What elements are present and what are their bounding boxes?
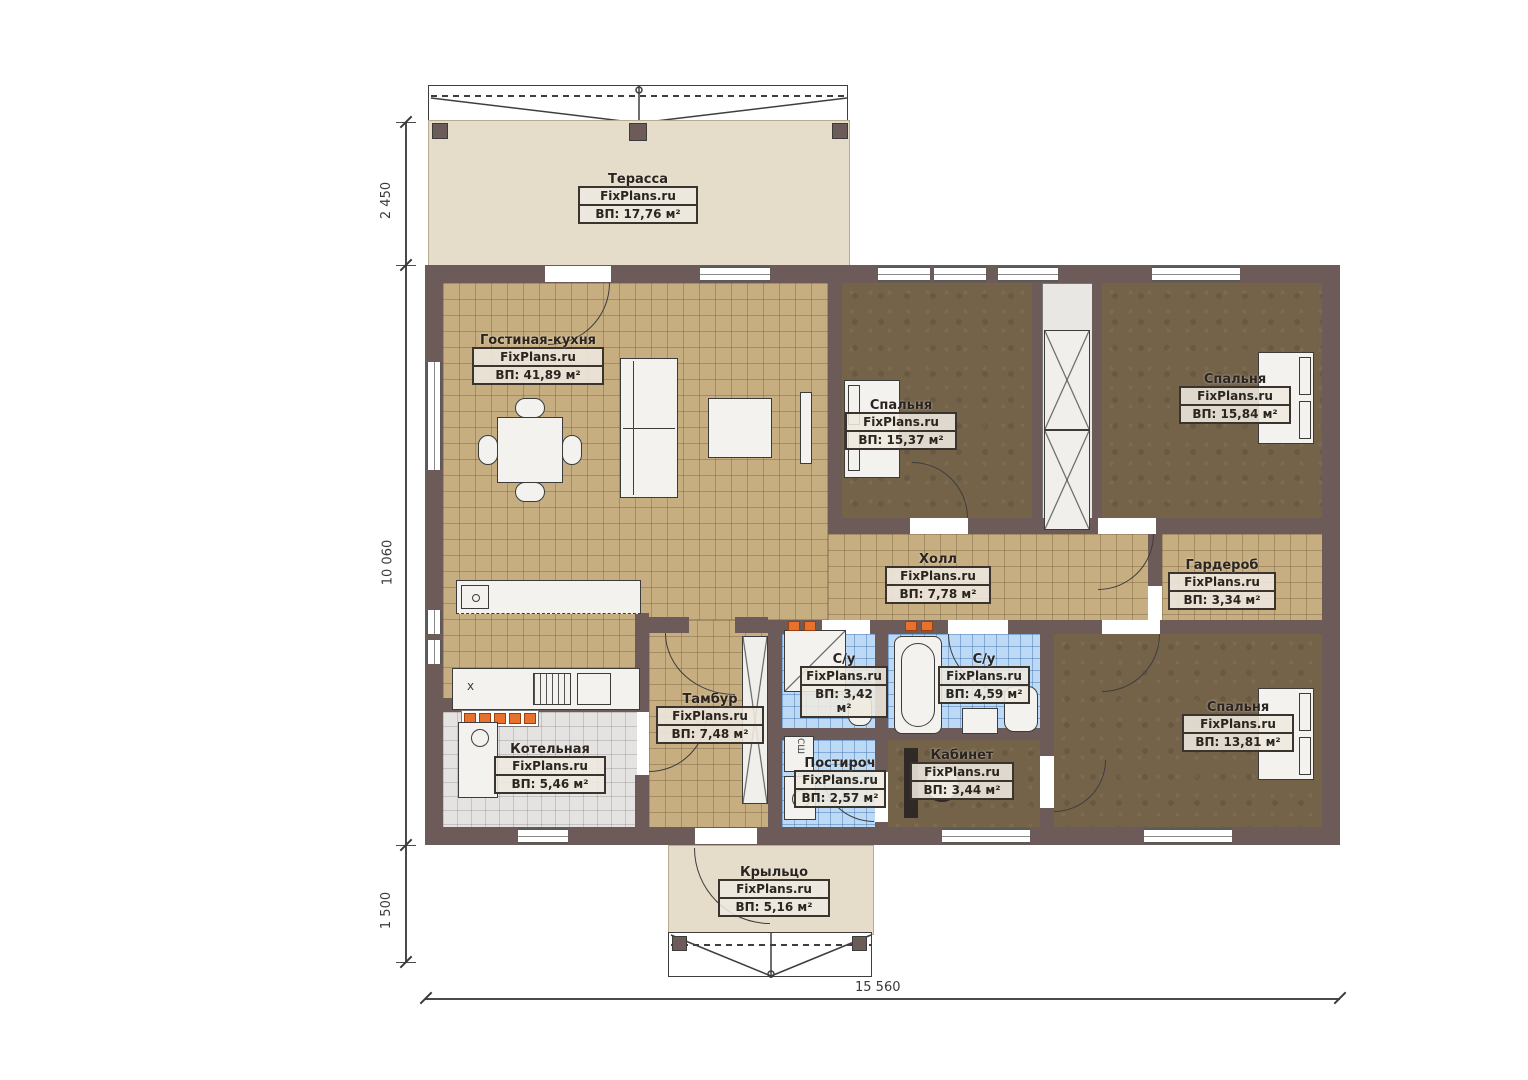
area-box: ВП: 7,78 м² [885, 584, 991, 604]
pillow [1299, 357, 1311, 395]
porch-roof-lines [669, 933, 873, 978]
room-name: Холл [885, 552, 991, 567]
room-name: С/у [938, 652, 1030, 667]
label-bathroom2: С/у FixPlans.ru ВП: 4,59 м² [938, 652, 1030, 704]
wall-vestibule-top-right [735, 617, 768, 633]
area-box: ВП: 15,84 м² [1179, 404, 1291, 424]
closet-lower [1044, 430, 1090, 530]
window-bottom-bedroom3 [1144, 828, 1232, 844]
room-name: Постироч [794, 756, 886, 771]
porch-post-left [672, 936, 687, 951]
label-wardrobe: Гардероб FixPlans.ru ВП: 3,34 м² [1168, 558, 1276, 610]
label-bedroom1: Спальня FixPlans.ru ВП: 15,37 м² [845, 398, 957, 450]
closet-upper [1044, 330, 1090, 430]
wall-closet-left [1032, 283, 1042, 518]
dining-table [497, 417, 563, 483]
kitchen-counter-top [456, 580, 641, 614]
kitchen-counter-bottom: x [452, 668, 640, 710]
wall-vestibule-top-left [649, 617, 689, 633]
room-name: С/у [800, 652, 888, 667]
label-vestibule: Тамбур FixPlans.ru ВП: 7,48 м² [656, 692, 764, 744]
dining-chair-right [562, 435, 582, 465]
dim-left-bottom: 1 500 [379, 892, 394, 929]
brand-box: FixPlans.ru [910, 762, 1014, 782]
terrace-post-right [832, 123, 848, 139]
wall-kitchen-vestibule-lower [635, 775, 649, 827]
heater-mark [905, 621, 917, 631]
heater-mark [804, 621, 816, 631]
bathtub [894, 636, 942, 734]
window-top-bedroom2 [1152, 266, 1240, 282]
window-top-closet [998, 266, 1058, 282]
brand-box: FixPlans.ru [1179, 386, 1291, 406]
brand-box: FixPlans.ru [578, 186, 698, 206]
room-name: Спальня [845, 398, 957, 413]
brand-box: FixPlans.ru [800, 666, 888, 686]
pillow [1299, 693, 1311, 731]
label-bathroom1: С/у FixPlans.ru ВП: 3,42 м² [800, 652, 888, 718]
pillow [1299, 737, 1311, 775]
brand-box: FixPlans.ru [845, 412, 957, 432]
label-living-kitchen: Гостиная-кухня FixPlans.ru ВП: 41,89 м² [472, 333, 604, 385]
window-top-living [700, 266, 770, 282]
window-left-kitchen-b [426, 640, 442, 664]
window-left-living [426, 362, 442, 470]
brand-box: FixPlans.ru [494, 756, 606, 776]
boiler-unit [458, 722, 498, 798]
wardrobe-opening [1148, 586, 1162, 620]
label-bedroom3: Спальня FixPlans.ru ВП: 13,81 м² [1182, 700, 1294, 752]
wall-vestibule-bath [768, 620, 782, 845]
label-terrace: Терасса FixPlans.ru ВП: 17,76 м² [578, 172, 698, 224]
dim-bottom: 15 560 [855, 980, 901, 995]
radiator-cell [509, 713, 521, 724]
room-name: Спальня [1182, 700, 1294, 715]
room-name: Котельная [494, 742, 606, 757]
brand-box: FixPlans.ru [794, 770, 886, 790]
room-name: Кабинет [910, 748, 1014, 763]
wall-living-bedroom1 [828, 283, 842, 530]
dim-left-middle: 10 060 [380, 540, 395, 586]
boiler-dial [471, 729, 489, 747]
area-box: ВП: 2,57 м² [794, 788, 886, 808]
brand-box: FixPlans.ru [718, 879, 830, 899]
entrance-door-opening [695, 828, 757, 844]
wall-outer-right [1322, 265, 1340, 845]
area-box: ВП: 13,81 м² [1182, 732, 1294, 752]
terrace-post-left [432, 123, 448, 139]
wall-closet-right [1092, 283, 1102, 518]
terrace-post-center [629, 123, 647, 141]
label-bedroom2: Спальня FixPlans.ru ВП: 15,84 м² [1179, 372, 1291, 424]
room-name: Гардероб [1168, 558, 1276, 573]
pillow [1299, 401, 1311, 439]
dining-chair-left [478, 435, 498, 465]
radiator-cell [524, 713, 536, 724]
wall-outer-left [425, 265, 443, 845]
sink-bath2 [962, 708, 998, 734]
room-name: Тамбур [656, 692, 764, 707]
area-box: ВП: 3,42 м² [800, 684, 888, 718]
floor-plan: x СШ [0, 0, 1528, 1080]
stove [533, 673, 571, 705]
bathtub-inner [901, 643, 935, 727]
window-top-bedroom1-a [878, 266, 930, 282]
office-door-opening [1040, 756, 1054, 808]
area-box: ВП: 15,37 м² [845, 430, 957, 450]
window-bottom-office [942, 828, 1030, 844]
area-box: ВП: 17,76 м² [578, 204, 698, 224]
bedroom2-door-opening [1098, 518, 1156, 534]
dim-line-left [405, 122, 407, 963]
brand-box: FixPlans.ru [1168, 572, 1276, 592]
counter-mark: x [467, 679, 474, 693]
dim-line-bottom [425, 998, 1340, 1000]
window-left-kitchen-a [426, 610, 442, 634]
dim-left-top: 2 450 [379, 182, 394, 219]
room-name: Гостиная-кухня [472, 333, 604, 348]
brand-box: FixPlans.ru [656, 706, 764, 726]
area-box: ВП: 3,44 м² [910, 780, 1014, 800]
area-box: ВП: 4,59 м² [938, 684, 1030, 704]
label-hall: Холл FixPlans.ru ВП: 7,78 м² [885, 552, 991, 604]
kitchen-sink [461, 585, 489, 609]
terrace-roof-outline [428, 85, 848, 123]
area-box: ВП: 5,46 м² [494, 774, 606, 794]
area-box: ВП: 5,16 м² [718, 897, 830, 917]
sofa-divider [623, 428, 675, 429]
area-box: ВП: 3,34 м² [1168, 590, 1276, 610]
dining-chair-bottom [515, 482, 545, 502]
brand-box: FixPlans.ru [938, 666, 1030, 686]
brand-box: FixPlans.ru [1182, 714, 1294, 734]
bedroom3-door-opening [1102, 620, 1160, 634]
sink-drain [472, 594, 480, 602]
coffee-table [708, 398, 772, 458]
terrace-roof-lines [429, 86, 849, 124]
heater-mark [921, 621, 933, 631]
sofa [620, 358, 678, 498]
dining-chair-top [515, 398, 545, 418]
room-name: Спальня [1179, 372, 1291, 387]
oven [577, 673, 611, 705]
brand-box: FixPlans.ru [885, 566, 991, 586]
heater-mark [788, 621, 800, 631]
label-laundry: Постироч FixPlans.ru ВП: 2,57 м² [794, 756, 886, 808]
room-name: Терасса [578, 172, 698, 187]
bedroom1-door-opening [910, 518, 968, 534]
window-top-bedroom1-b [934, 266, 986, 282]
label-boiler-room: Котельная FixPlans.ru ВП: 5,46 м² [494, 742, 606, 794]
porch-post-right [852, 936, 867, 951]
label-office: Кабинет FixPlans.ru ВП: 3,44 м² [910, 748, 1014, 800]
tv-unit [800, 392, 812, 464]
dryer-cabinet-label: СШ [795, 738, 805, 754]
area-box: ВП: 7,48 м² [656, 724, 764, 744]
area-box: ВП: 41,89 м² [472, 365, 604, 385]
room-name: Крыльцо [718, 865, 830, 880]
label-porch: Крыльцо FixPlans.ru ВП: 5,16 м² [718, 865, 830, 917]
porch-roof-outline [668, 932, 872, 977]
window-bottom-boiler [518, 828, 568, 844]
bathroom2-door-opening [948, 620, 1008, 634]
terrace-door-opening [545, 266, 611, 282]
brand-box: FixPlans.ru [472, 347, 604, 367]
